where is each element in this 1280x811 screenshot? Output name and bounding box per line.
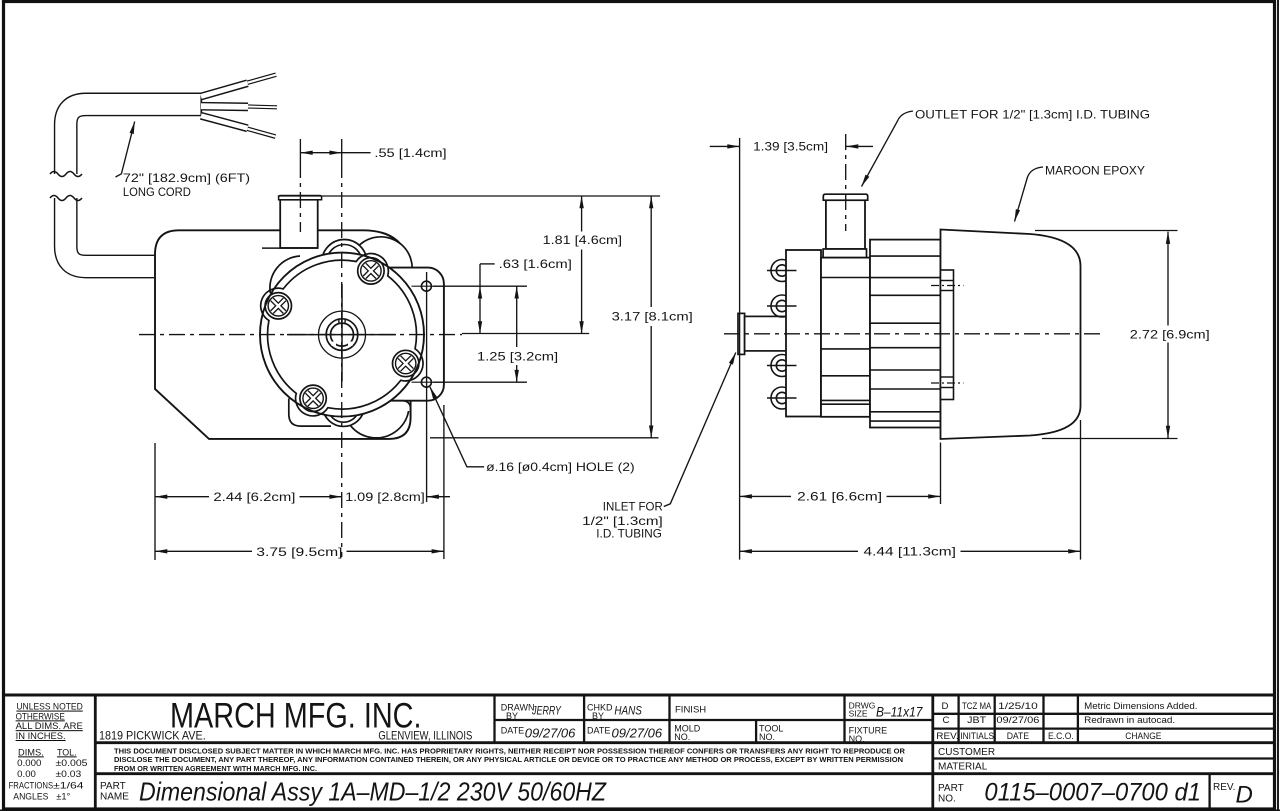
- svg-text:09/27/06: 09/27/06: [525, 726, 576, 741]
- svg-text:BY: BY: [592, 711, 604, 721]
- svg-text:ø.16 [ø0.4cm] HOLE (2): ø.16 [ø0.4cm] HOLE (2): [486, 460, 635, 474]
- svg-text:FROM OR WRITTEN AGREEMENT WITH: FROM OR WRITTEN AGREEMENT WITH MARCH MFG…: [114, 764, 317, 773]
- svg-text:3.75 [9.5cm]: 3.75 [9.5cm]: [256, 545, 342, 559]
- svg-text:DATE: DATE: [501, 726, 524, 736]
- svg-text:D: D: [1236, 782, 1253, 809]
- svg-text:NO.: NO.: [938, 794, 956, 805]
- svg-text:FINISH: FINISH: [675, 705, 706, 716]
- svg-text:JBT: JBT: [967, 715, 986, 726]
- svg-text:1.39 [3.5cm]: 1.39 [3.5cm]: [753, 140, 828, 154]
- svg-text:TCZ MA: TCZ MA: [962, 701, 992, 712]
- svg-text:72" [182.9cm] (6FT): 72" [182.9cm] (6FT): [123, 171, 250, 185]
- svg-text:2.72 [6.9cm]: 2.72 [6.9cm]: [1130, 327, 1210, 341]
- svg-text:REV.: REV.: [936, 731, 958, 742]
- svg-text:PART: PART: [938, 783, 964, 794]
- svg-text:THIS DOCUMENT DISCLOSED SUBJEC: THIS DOCUMENT DISCLOSED SUBJECT MATTER I…: [114, 746, 906, 755]
- svg-text:±1°: ±1°: [56, 791, 70, 802]
- svg-text:TOL.: TOL.: [57, 747, 77, 758]
- svg-text:DATE: DATE: [1007, 731, 1029, 742]
- svg-text:FRACTIONS: FRACTIONS: [9, 780, 54, 791]
- svg-text:09/27/06: 09/27/06: [612, 726, 663, 741]
- svg-text:0.000: 0.000: [17, 758, 41, 769]
- svg-text:C: C: [943, 715, 950, 726]
- svg-text:MAROON EPOXY: MAROON EPOXY: [1045, 163, 1145, 177]
- svg-text:.55 [1.4cm]: .55 [1.4cm]: [374, 146, 446, 160]
- svg-text:09/27/06: 09/27/06: [996, 715, 1039, 726]
- svg-text:NAME: NAME: [100, 792, 129, 803]
- svg-text:MATERIAL: MATERIAL: [938, 762, 988, 773]
- svg-text:Metric Dimensions Added.: Metric Dimensions Added.: [1084, 701, 1197, 712]
- svg-text:PART: PART: [100, 781, 126, 792]
- svg-text:CHANGE: CHANGE: [1125, 731, 1161, 742]
- svg-text:1.09 [2.8cm]: 1.09 [2.8cm]: [345, 490, 425, 504]
- svg-text:0115–0007–0700 d1: 0115–0007–0700 d1: [984, 779, 1201, 807]
- svg-text:I.D. TUBING: I.D. TUBING: [596, 527, 662, 541]
- svg-text:IN INCHES.: IN INCHES.: [16, 731, 66, 742]
- svg-text:2.61 [6.6cm]: 2.61 [6.6cm]: [797, 490, 882, 504]
- svg-text:±0.005: ±0.005: [56, 758, 88, 769]
- svg-text:E.C.O.: E.C.O.: [1048, 731, 1074, 742]
- svg-text:GLENVIEW, ILLINOIS: GLENVIEW, ILLINOIS: [378, 729, 472, 743]
- svg-text:B–11x17: B–11x17: [876, 705, 923, 720]
- svg-text:LONG CORD: LONG CORD: [123, 185, 191, 199]
- svg-text:SIZE: SIZE: [849, 709, 868, 719]
- svg-text:DIMS.: DIMS.: [18, 747, 44, 758]
- svg-text:BY: BY: [506, 711, 518, 721]
- svg-text:Redrawn in autocad.: Redrawn in autocad.: [1084, 715, 1175, 726]
- svg-text:CUSTOMER: CUSTOMER: [938, 747, 995, 758]
- svg-text:1.25 [3.2cm]: 1.25 [3.2cm]: [477, 349, 558, 363]
- svg-text:HANS: HANS: [614, 704, 642, 718]
- svg-text:±0.03: ±0.03: [56, 769, 82, 780]
- svg-text:DATE: DATE: [587, 726, 610, 736]
- svg-text:NO.: NO.: [849, 734, 865, 744]
- svg-text:DISCLOSE THE DOCUMENT, ANY PAR: DISCLOSE THE DOCUMENT, ANY PART THEREOF,…: [114, 755, 903, 764]
- svg-text:JERRY: JERRY: [531, 704, 561, 718]
- svg-text:NO.: NO.: [759, 732, 775, 742]
- svg-text:D: D: [942, 701, 949, 712]
- svg-text:.63 [1.6cm]: .63 [1.6cm]: [499, 257, 572, 271]
- svg-text:OUTLET FOR 1/2" [1.3cm] I.D. T: OUTLET FOR 1/2" [1.3cm] I.D. TUBING: [915, 107, 1150, 121]
- svg-text:INLET FOR: INLET FOR: [603, 499, 663, 513]
- svg-text:2.44 [6.2cm]: 2.44 [6.2cm]: [213, 490, 295, 504]
- svg-text:ANGLES: ANGLES: [13, 791, 48, 802]
- svg-text:±1/64: ±1/64: [53, 780, 84, 791]
- svg-text:REV.: REV.: [1213, 782, 1235, 793]
- svg-text:0.00: 0.00: [17, 769, 36, 780]
- svg-text:4.44 [11.3cm]: 4.44 [11.3cm]: [864, 545, 956, 559]
- svg-text:1/25/10: 1/25/10: [998, 701, 1038, 712]
- svg-text:Dimensional Assy 1A–MD–1/2 230: Dimensional Assy 1A–MD–1/2 230V 50/60HZ: [139, 777, 607, 807]
- svg-text:INITIALS: INITIALS: [960, 731, 994, 742]
- svg-text:1.81 [4.6cm]: 1.81 [4.6cm]: [543, 233, 622, 247]
- svg-text:3.17 [8.1cm]: 3.17 [8.1cm]: [612, 310, 693, 324]
- svg-text:1819 PICKWICK AVE.: 1819 PICKWICK AVE.: [99, 729, 206, 743]
- svg-text:NO.: NO.: [674, 732, 690, 742]
